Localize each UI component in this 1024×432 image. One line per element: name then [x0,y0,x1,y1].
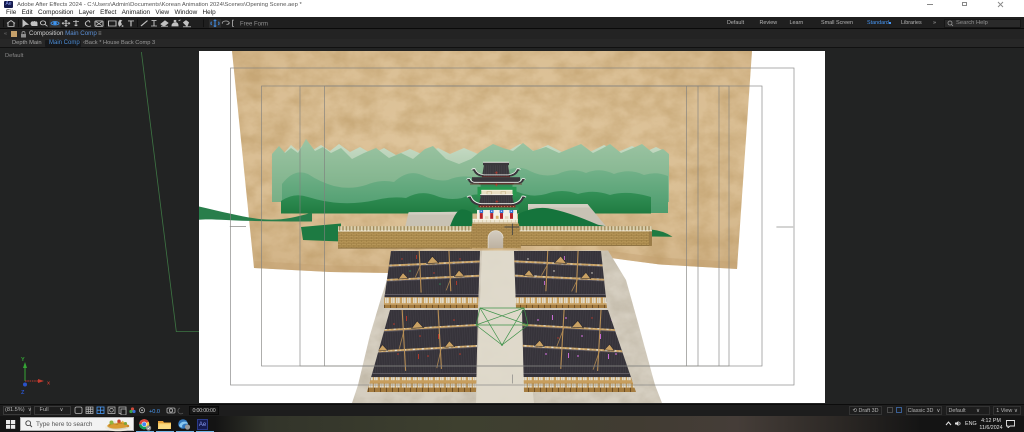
svg-text:Free Form: Free Form [240,22,268,28]
svg-text:+0.0: +0.0 [149,409,160,415]
svg-text:Z: Z [21,390,25,396]
svg-text:Y: Y [21,357,25,363]
svg-text:x: x [47,381,51,387]
